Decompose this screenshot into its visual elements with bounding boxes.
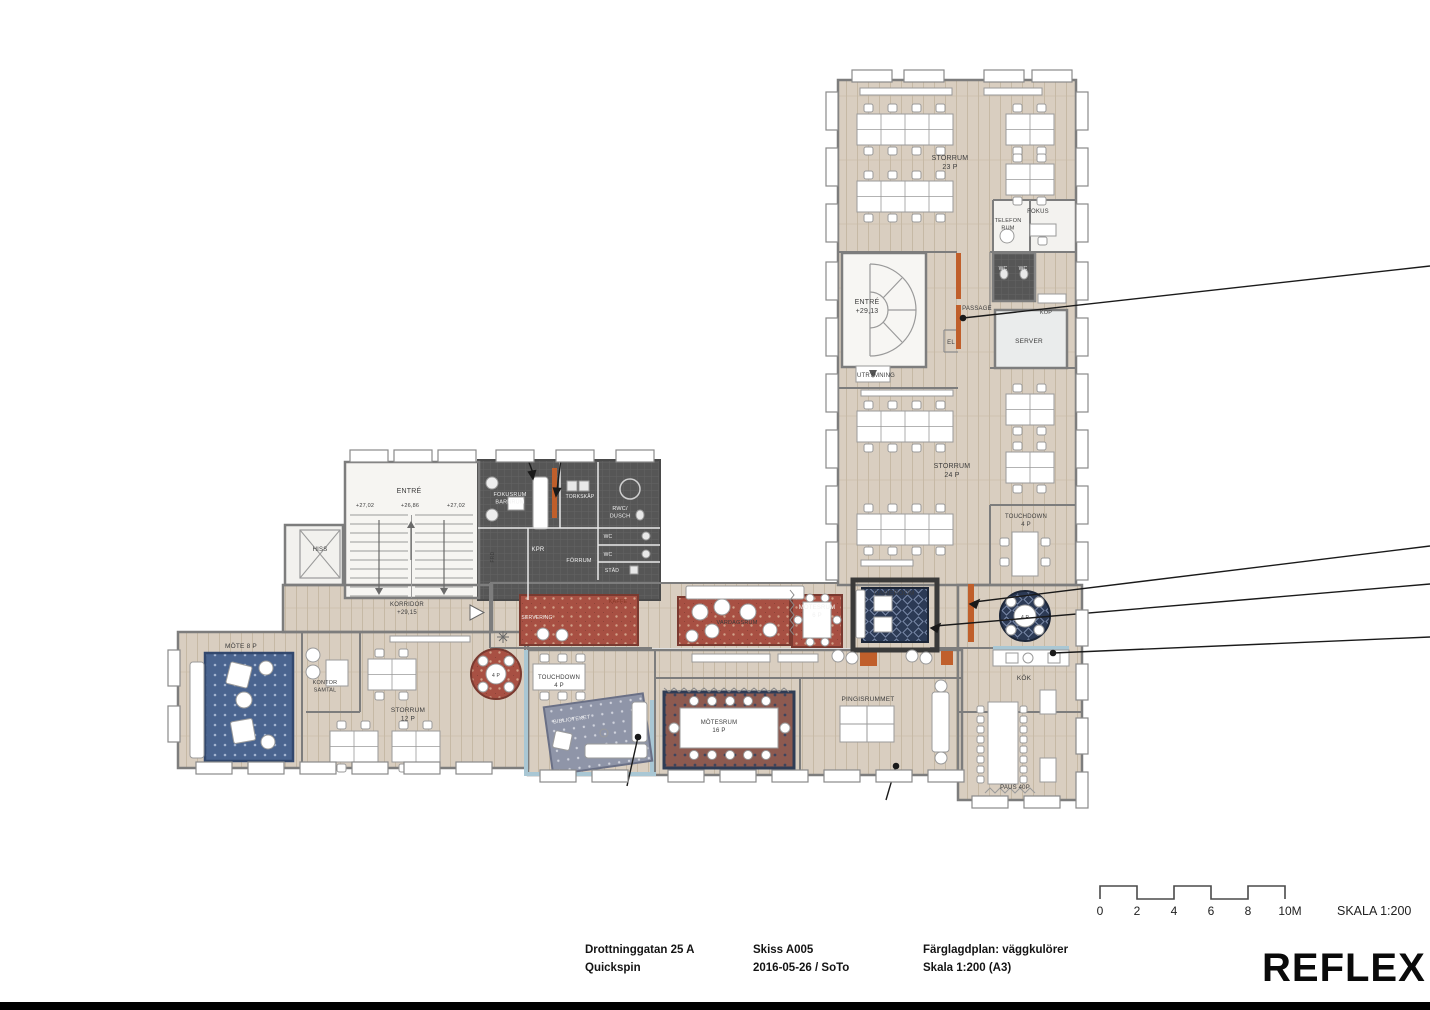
label-level-b: +26,86 [401, 503, 419, 509]
window-bay [456, 762, 492, 774]
window-bay [168, 706, 180, 742]
scale-bar: 0 2 4 6 8 10M SKALA 1:200 [1097, 886, 1412, 918]
window-bay [248, 762, 284, 774]
label-wc-c: WC [604, 534, 613, 540]
chair [977, 726, 984, 733]
chair [1020, 716, 1027, 723]
chair [1020, 706, 1027, 713]
scale-tick-6: 6 [1208, 904, 1215, 918]
chair [1020, 736, 1027, 743]
window-bay [1076, 374, 1088, 412]
reflex-logo: REFLEX [1262, 946, 1426, 990]
scale-tick-10m: 10M [1278, 904, 1301, 918]
label-utrymning: UTRYMNING [857, 373, 895, 379]
label-gameroom: GAMEROOM [874, 590, 915, 597]
window-bay [1076, 92, 1088, 130]
title-scale: Skala 1:200 (A3) [923, 962, 1011, 974]
window-bay [824, 770, 860, 782]
label-table4p-right: 4 P [1021, 615, 1030, 621]
chair [690, 751, 699, 760]
label-forrum: FÖRRUM [566, 557, 592, 564]
chair [1020, 756, 1027, 763]
window-bay [556, 450, 594, 462]
chair [1020, 726, 1027, 733]
label-kontor-samtal: KONTORSAMTAL [313, 680, 338, 693]
window-bay [496, 450, 534, 462]
window-bay [826, 204, 838, 242]
scale-tick-2: 2 [1134, 904, 1141, 918]
label-server: SERVER [1015, 338, 1043, 345]
window-bay [772, 770, 808, 782]
label-kaffe: KAFFE [609, 599, 628, 605]
title-block: Drottninggatan 25 A Quickspin Skiss A005… [585, 944, 1426, 990]
window-bay [438, 450, 476, 462]
title-plan-type: Färglagdplan: väggkulörer [923, 944, 1069, 956]
window-bay [1076, 148, 1088, 186]
window-bay [826, 262, 838, 300]
label-vardagsrum: VARDAGSRUM [716, 620, 757, 626]
window-bay [984, 70, 1024, 82]
label-mote8: MÖTE 8 P [225, 642, 257, 650]
orange-wall-passage-2 [956, 305, 961, 349]
window-bay [1076, 262, 1088, 300]
scale-bar-steps [1100, 886, 1285, 899]
window-bay [720, 770, 756, 782]
window-bay [350, 450, 388, 462]
floor-wc-block [993, 253, 1035, 301]
chair [762, 751, 771, 760]
chair [977, 716, 984, 723]
orange-bench-2 [941, 651, 953, 665]
blue-wall-kitchen [993, 646, 1069, 650]
label-level-a: +27,02 [356, 503, 374, 509]
window-bay [826, 486, 838, 524]
label-entre-right: ENTRÉ+29,13 [855, 297, 880, 315]
chair [977, 736, 984, 743]
chair [1020, 776, 1027, 783]
label-fokusrum-barnrum: FOKUSRUMBARNRUM [493, 492, 526, 505]
window-bay [1032, 70, 1072, 82]
label-hiss: HISS [313, 547, 328, 553]
floor-plan-sheet: STORRUM23 P FOKUS TELEFONRUM ENTRÉ+29,13… [0, 0, 1430, 1010]
window-bay [168, 650, 180, 686]
label-paus: PAUS 40P [1000, 785, 1030, 791]
chair [708, 697, 717, 706]
window-bay [826, 318, 838, 356]
window-bay [1076, 204, 1088, 242]
title-date-author: 2016-05-26 / SoTo [753, 962, 849, 974]
label-wc-a: WC [999, 266, 1008, 272]
chair [744, 751, 753, 760]
window-bay [1076, 430, 1088, 468]
chair [690, 697, 699, 706]
chair [762, 697, 771, 706]
chair [708, 751, 717, 760]
chair [726, 751, 735, 760]
chair [977, 776, 984, 783]
label-torkskap: TORKSKÅP [566, 493, 595, 500]
title-address: Drottninggatan 25 A [585, 944, 694, 956]
orange-wall-gameroom [968, 584, 974, 642]
window-bay [592, 770, 628, 782]
window-bay [852, 70, 892, 82]
label-entre-left: ENTRÉ [397, 486, 422, 495]
label-kok: KÖK [1017, 674, 1032, 682]
bottom-bar [0, 1002, 1430, 1010]
label-passage: PASSAGE [962, 306, 992, 312]
chair [977, 746, 984, 753]
title-sketch: Skiss A005 [753, 944, 814, 956]
window-bay [1076, 542, 1088, 580]
window-bay [1076, 664, 1088, 700]
label-table4p-left: 4 P [492, 673, 501, 679]
window-bay [972, 796, 1008, 808]
label-wc-d: WC [604, 552, 613, 558]
chair [977, 756, 984, 763]
label-wc-b: WC [1019, 266, 1028, 272]
window-bay [1024, 796, 1060, 808]
label-pingisrummet: PINGISRUMMET [842, 696, 895, 703]
label-kpr: KPR [532, 547, 545, 553]
window-bay [928, 770, 964, 782]
window-bay [826, 148, 838, 186]
chair [1020, 746, 1027, 753]
window-bay [904, 70, 944, 82]
scale-label: SKALA 1:200 [1337, 904, 1411, 918]
window-bay [394, 450, 432, 462]
chair [726, 697, 735, 706]
window-bay [1076, 772, 1088, 808]
window-bay [540, 770, 576, 782]
chair [977, 766, 984, 773]
label-fokus: FOKUS [1027, 209, 1049, 215]
window-bay [352, 762, 388, 774]
window-bay [616, 450, 654, 462]
window-bay [404, 762, 440, 774]
label-rwc-dusch: RWC/DUSCH [610, 506, 631, 519]
paus-table [988, 702, 1018, 784]
window-bay [1076, 610, 1088, 646]
blue-wall-bibliotek-left [524, 650, 528, 776]
window-bay [826, 430, 838, 468]
label-stad: STÄD [605, 567, 619, 574]
scale-tick-8: 8 [1245, 904, 1252, 918]
window-bay [826, 542, 838, 580]
scale-tick-4: 4 [1171, 904, 1178, 918]
window-bay [668, 770, 704, 782]
window-bay [876, 770, 912, 782]
window-bay [826, 374, 838, 412]
label-kop: KOP [1040, 310, 1052, 316]
floor-hiss [285, 525, 343, 585]
title-client: Quickspin [585, 962, 641, 974]
label-frd: FRD [490, 551, 496, 562]
chair [744, 697, 753, 706]
label-el: EL [947, 340, 955, 346]
window-bay [1076, 718, 1088, 754]
label-servering: SERVERING [521, 615, 552, 621]
window-bay [1076, 486, 1088, 524]
floor-plan-drawing: STORRUM23 P FOKUS TELEFONRUM ENTRÉ+29,13… [0, 0, 1430, 1010]
chair [1020, 766, 1027, 773]
scale-tick-0: 0 [1097, 904, 1104, 918]
chair [977, 706, 984, 713]
label-level-c: +27,02 [447, 503, 465, 509]
orange-wall-passage-1 [956, 253, 961, 299]
window-bay [196, 762, 232, 774]
window-bay [1076, 318, 1088, 356]
window-bay [300, 762, 336, 774]
window-bay [826, 92, 838, 130]
